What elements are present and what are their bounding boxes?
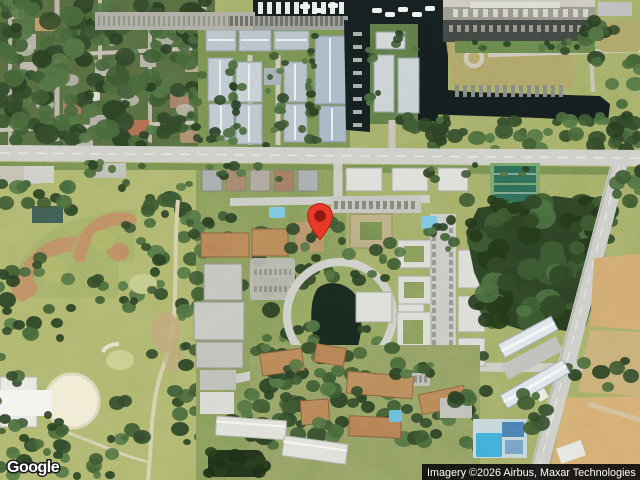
svg-text:Google: Google bbox=[7, 459, 60, 476]
svg-text:Imagery ©2026 Airbus, Maxar Te: Imagery ©2026 Airbus, Maxar Technologies bbox=[427, 467, 636, 479]
